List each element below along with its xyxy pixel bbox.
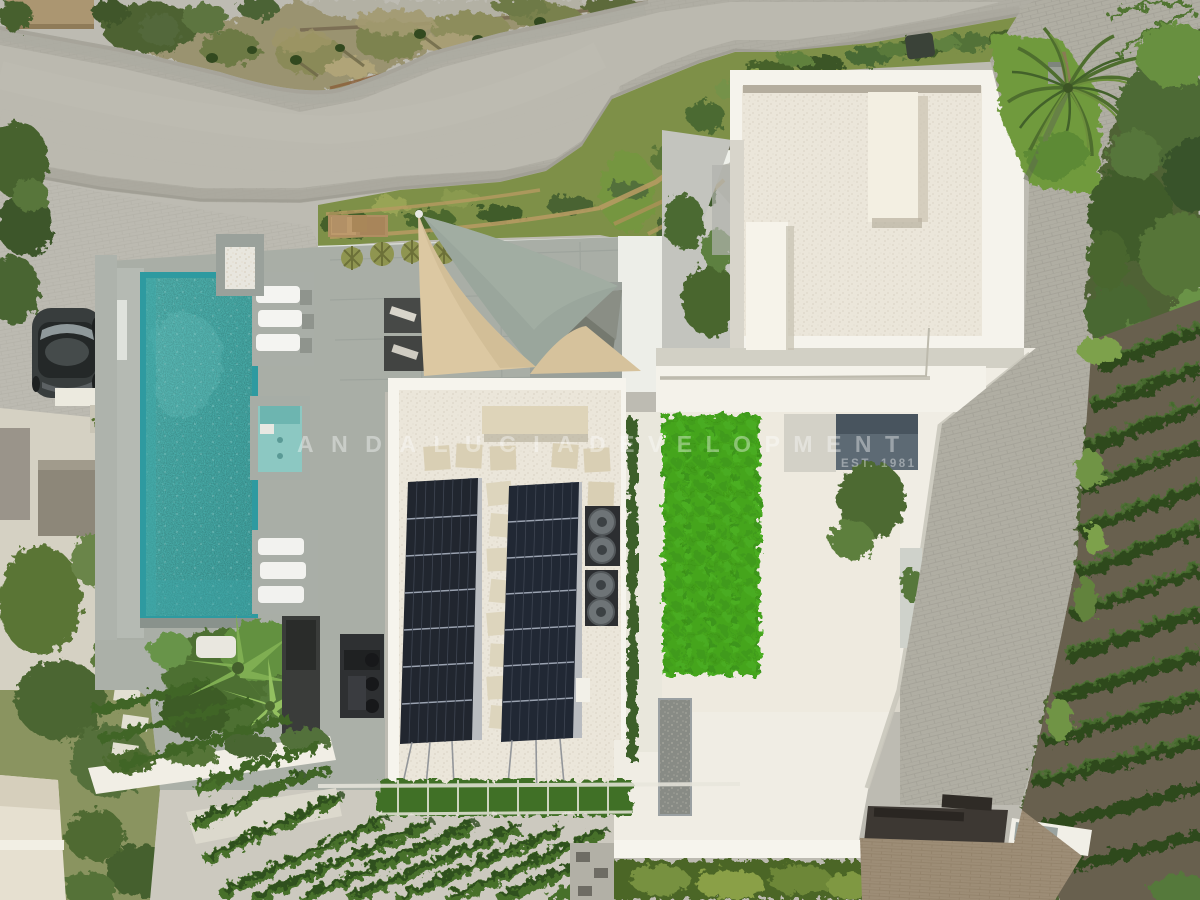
svg-text:DEVELOPMENT: DEVELOPMENT — [589, 431, 913, 457]
svg-text:EST. 1981: EST. 1981 — [841, 458, 917, 470]
svg-text:ANDALUCIA: ANDALUCIA — [297, 431, 591, 457]
